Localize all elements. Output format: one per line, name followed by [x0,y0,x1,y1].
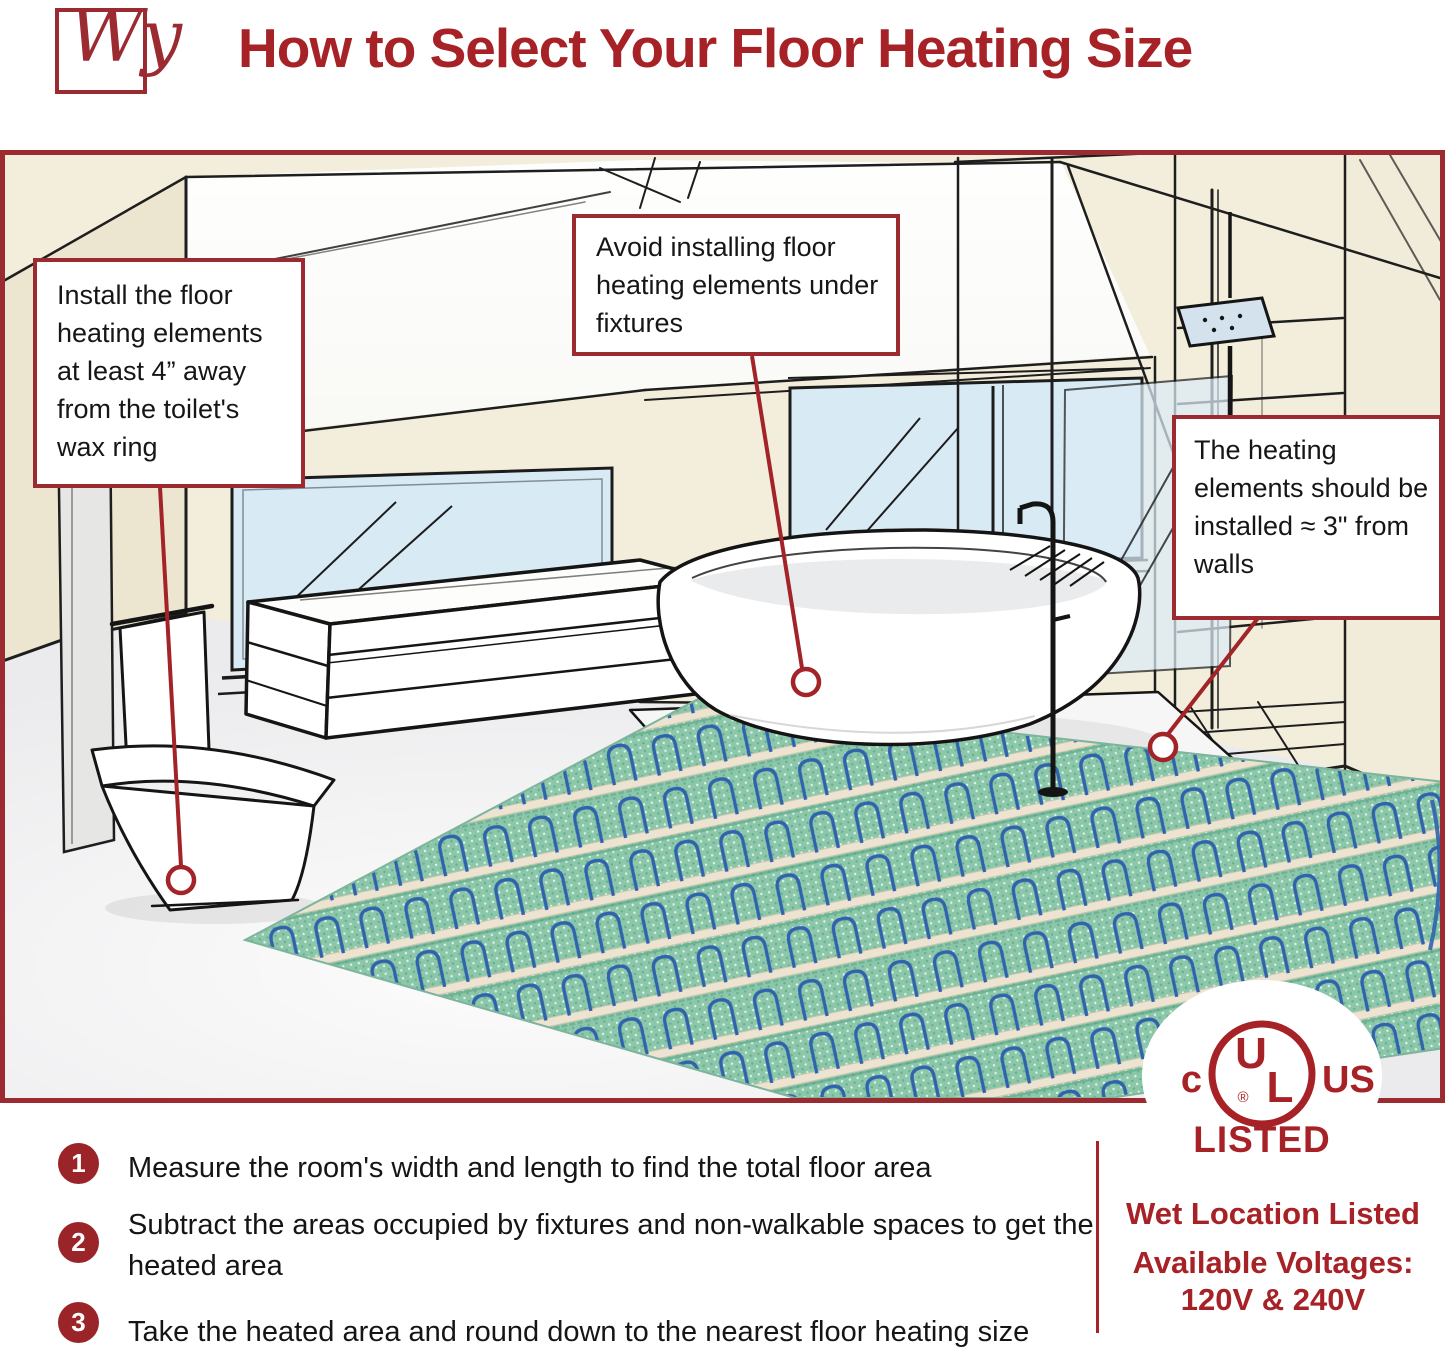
step-text-1: Measure the room's width and length to f… [128,1148,1128,1189]
ul-letter-u: U [1235,1029,1267,1078]
callout-walls: The heating elements should be installed… [1172,415,1443,620]
infographic: Wy How to Select Your Floor Heating Size [0,0,1445,1348]
leader-dot [793,669,819,695]
voltages-value: 120V & 240V [1112,1282,1434,1318]
vertical-divider [1096,1141,1099,1333]
step-badge-1: 1 [58,1143,99,1184]
callout-toilet: Install the floor heating elements at le… [33,258,305,488]
ul-registered-mark: ® [1237,1089,1248,1106]
step-text-2: Subtract the areas occupied by fixtures … [128,1205,1103,1287]
step-text-3: Take the heated area and round down to t… [128,1312,1138,1348]
ul-listed-label: LISTED [1193,1119,1331,1160]
brand-logo-text: Wy [69,0,182,72]
wet-location-label: Wet Location Listed [1112,1196,1434,1232]
step-badge-3: 3 [58,1302,99,1343]
leader-dot [1150,734,1176,760]
page-title: How to Select Your Floor Heating Size [238,16,1338,80]
step-badge-2: 2 [58,1222,99,1263]
brand-logo: Wy [55,8,147,94]
callout-fixtures: Avoid installing floor heating elements … [572,214,900,356]
ul-us-label: US [1322,1059,1375,1101]
ul-letter-l: L [1267,1063,1294,1112]
ul-c-label: c [1181,1059,1202,1101]
ul-listed-logo: U L ® c US LISTED [1142,980,1382,1172]
leader-dot [168,867,194,893]
voltages-label: Available Voltages: [1112,1245,1434,1281]
